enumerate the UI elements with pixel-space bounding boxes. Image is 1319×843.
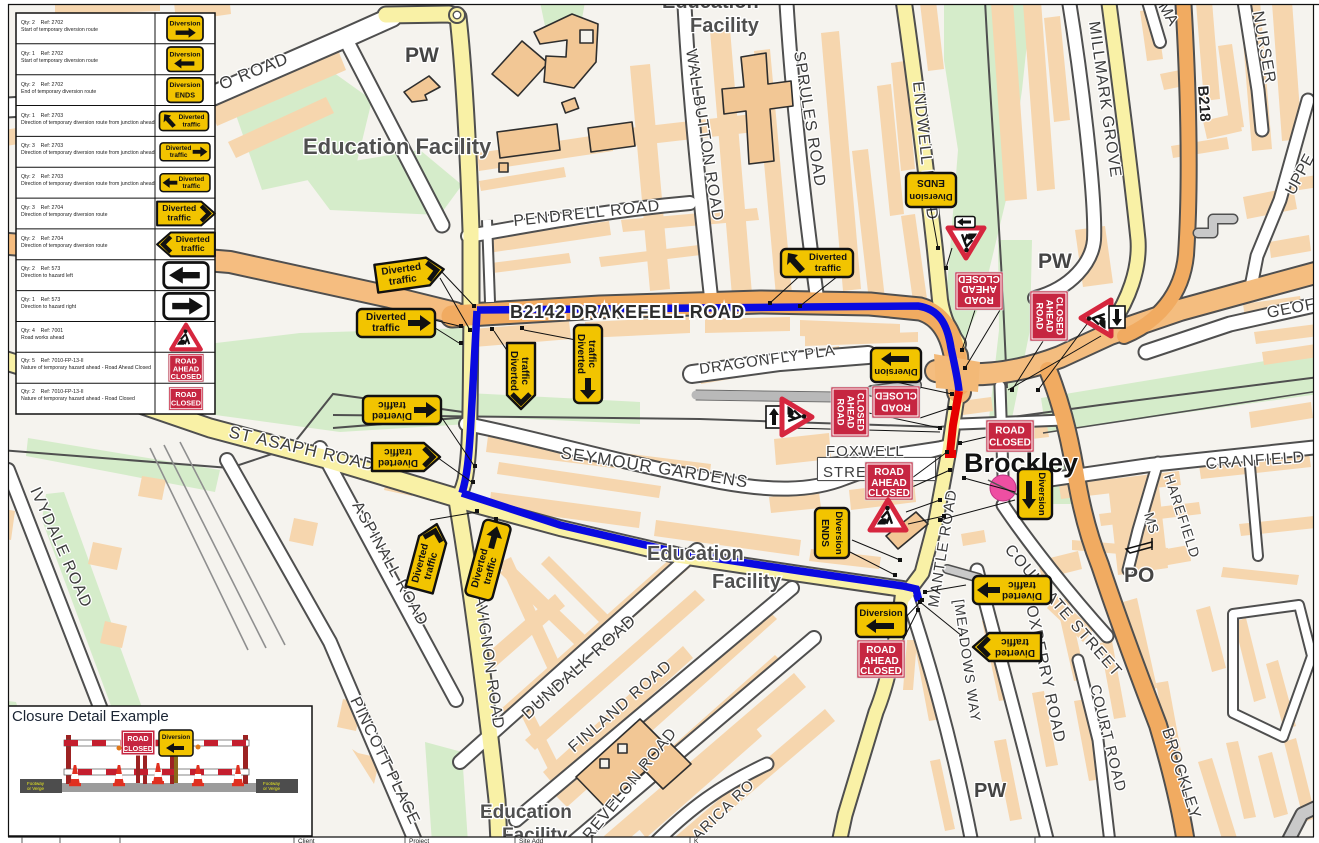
svg-text:PO: PO — [1124, 564, 1154, 587]
svg-text:Education Facility: Education Facility — [303, 134, 492, 159]
svg-text:K: K — [694, 838, 699, 843]
svg-text:Qty: 4 Ref: 7001: Qty: 4 Ref: 7001 — [21, 328, 63, 334]
svg-text:or Verge: or Verge — [27, 786, 45, 791]
svg-text:Qty: 5 Ref: 7010-FP-13-II: Qty: 5 Ref: 7010-FP-13-II — [21, 358, 84, 364]
svg-text:Road works ahead: Road works ahead — [21, 335, 64, 341]
svg-text:Qty: 3 Ref: 2703: Qty: 3 Ref: 2703 — [21, 143, 63, 149]
svg-text:Qty: 2 Ref: 2702: Qty: 2 Ref: 2702 — [21, 20, 63, 26]
svg-text:ROAD: ROAD — [127, 734, 148, 743]
svg-text:Direction of temporary diversi: Direction of temporary diversion route f… — [21, 181, 155, 187]
svg-text:Direction of temporary diversi: Direction of temporary diversion route — [21, 243, 108, 249]
svg-text:Nature of temporary hazard ahe: Nature of temporary hazard ahead - Road … — [21, 365, 151, 371]
svg-text:Site Add: Site Add — [519, 838, 544, 843]
svg-text:Qty: 2 Ref: 2703: Qty: 2 Ref: 2703 — [21, 174, 63, 180]
svg-text:Direction of temporary diversi: Direction of temporary diversion route — [21, 212, 108, 218]
svg-text:Direction of temporary diversi: Direction of temporary diversion route f… — [21, 150, 155, 156]
svg-text:Qty: 2 Ref: 7010-FP-13-II: Qty: 2 Ref: 7010-FP-13-II — [21, 389, 84, 395]
svg-text:Project: Project — [409, 838, 429, 843]
svg-text:Nature of temporary hazard ahe: Nature of temporary hazard ahead - Road … — [21, 396, 135, 402]
svg-text:PW: PW — [1038, 250, 1072, 273]
svg-text:Start of temporary diversion r: Start of temporary diversion route — [21, 27, 98, 33]
svg-text:Qty: 2 Ref: 2702: Qty: 2 Ref: 2702 — [21, 82, 63, 88]
svg-text:B2142 DRAKEFELL ROAD: B2142 DRAKEFELL ROAD — [510, 302, 745, 322]
svg-text:Qty: 1 Ref: 2702: Qty: 1 Ref: 2702 — [21, 51, 63, 57]
svg-text:Direction to hazard left: Direction to hazard left — [21, 273, 73, 279]
svg-text:B218: B218 — [1194, 85, 1213, 122]
svg-text:Direction of temporary diversi: Direction of temporary diversion route f… — [21, 120, 155, 126]
svg-text:Client: Client — [298, 838, 315, 843]
svg-text:Education: Education — [480, 802, 572, 823]
svg-text:End of temporary diversion rou: End of temporary diversion route — [21, 89, 96, 95]
svg-text:Direction to hazard right: Direction to hazard right — [21, 304, 77, 310]
svg-text:Diversion: Diversion — [162, 734, 190, 741]
svg-text:FOXWELL: FOXWELL — [826, 443, 905, 460]
svg-text:Qty: 2 Ref: 2704: Qty: 2 Ref: 2704 — [21, 236, 63, 242]
svg-text:Qty: 1 Ref: 573: Qty: 1 Ref: 573 — [21, 297, 60, 303]
svg-text:or Verge: or Verge — [263, 786, 281, 791]
svg-text:CLOSED: CLOSED — [123, 744, 153, 753]
svg-text:Qty: 2 Ref: 573: Qty: 2 Ref: 573 — [21, 266, 60, 272]
svg-text:Start of temporary diversion r: Start of temporary diversion route — [21, 58, 98, 64]
svg-text:Facility: Facility — [712, 571, 782, 593]
svg-text:Education: Education — [647, 543, 744, 565]
svg-text:PW: PW — [974, 780, 1006, 802]
svg-text:Closure Detail Example: Closure Detail Example — [12, 708, 169, 725]
svg-text:Facility: Facility — [690, 15, 760, 37]
svg-text:PW: PW — [405, 44, 439, 67]
svg-text:Qty: 1 Ref: 2703: Qty: 1 Ref: 2703 — [21, 113, 63, 119]
svg-text:Qty: 3 Ref: 2704: Qty: 3 Ref: 2704 — [21, 205, 63, 211]
